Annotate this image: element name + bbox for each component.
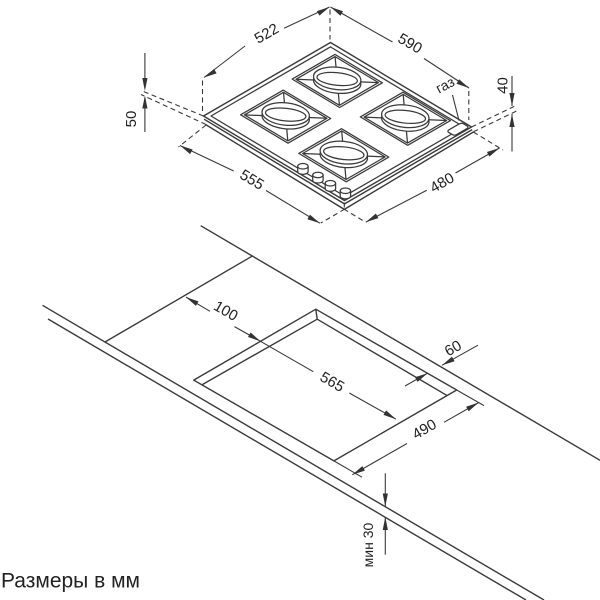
svg-text:50: 50: [123, 111, 140, 128]
svg-text:Размеры в мм: Размеры в мм: [1, 570, 140, 593]
svg-text:40: 40: [494, 77, 511, 94]
svg-text:мин 30: мин 30: [360, 522, 376, 567]
